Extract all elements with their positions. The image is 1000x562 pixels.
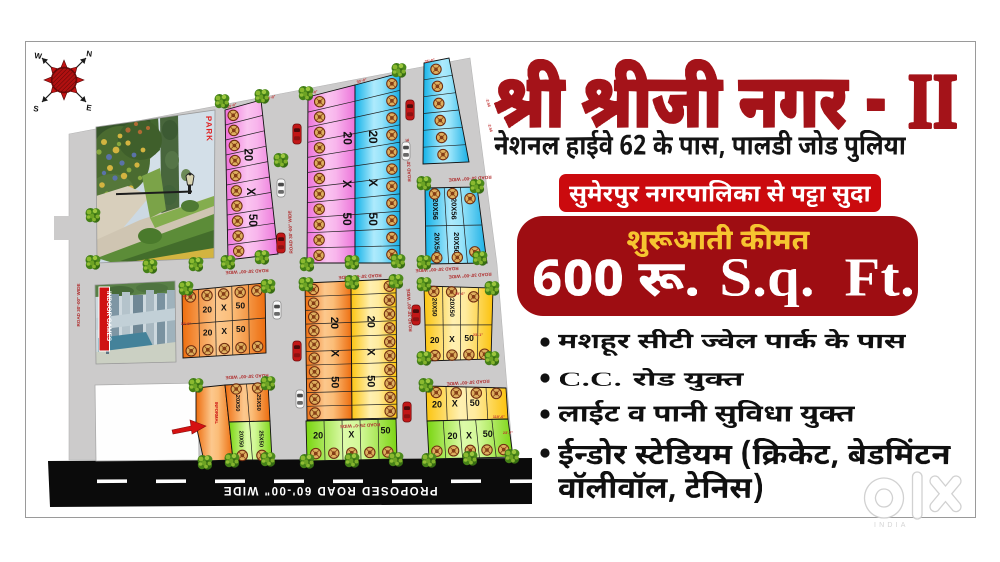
- svg-text:X: X: [366, 179, 380, 187]
- svg-text:20: 20: [313, 430, 323, 440]
- svg-text:X: X: [466, 430, 472, 440]
- svg-text:20X50: 20X50: [237, 431, 243, 448]
- svg-text:20X50: 20X50: [234, 395, 240, 412]
- svg-text:39'-6": 39'-6": [455, 292, 466, 296]
- svg-text:50: 50: [236, 324, 246, 334]
- svg-text:50: 50: [246, 214, 258, 227]
- svg-text:25X50: 25X50: [257, 430, 263, 447]
- svg-text:110'-6": 110'-6": [493, 415, 505, 419]
- svg-text:25X50: 25X50: [255, 394, 261, 411]
- svg-text:20X50: 20X50: [452, 232, 461, 254]
- svg-text:20: 20: [366, 130, 380, 144]
- svg-text:PARK: PARK: [204, 116, 214, 142]
- svg-text:ROAD 30'-00" WIDE: ROAD 30'-00" WIDE: [76, 283, 81, 326]
- svg-text:50: 50: [236, 300, 246, 310]
- svg-text:20: 20: [202, 305, 212, 315]
- svg-text:50: 50: [365, 375, 377, 387]
- svg-text:20: 20: [364, 316, 376, 328]
- svg-text:INFORMAL: INFORMAL: [214, 402, 219, 425]
- svg-text:X: X: [452, 399, 458, 409]
- svg-text:50: 50: [329, 376, 341, 388]
- svg-text:X: X: [364, 348, 376, 356]
- svg-text:20: 20: [241, 149, 253, 162]
- svg-text:X: X: [221, 302, 227, 312]
- svg-text:INDIA: INDIA: [874, 522, 909, 529]
- svg-text:20: 20: [447, 431, 457, 441]
- svg-text:20X56: 20X56: [450, 198, 459, 220]
- svg-text:23'-1": 23'-1": [473, 333, 484, 337]
- svg-text:20X50: 20X50: [448, 298, 455, 317]
- svg-text:50: 50: [483, 429, 493, 439]
- svg-text:X: X: [221, 326, 227, 336]
- svg-text:X: X: [348, 430, 354, 440]
- svg-text:INDOOR GAMES: INDOOR GAMES: [105, 291, 112, 341]
- svg-text:50: 50: [470, 398, 480, 408]
- svg-text:20: 20: [340, 132, 354, 146]
- svg-text:20X50: 20X50: [430, 298, 437, 317]
- svg-text:X: X: [244, 188, 256, 196]
- svg-text:50: 50: [340, 212, 354, 226]
- svg-text:50: 50: [366, 213, 380, 227]
- svg-text:20: 20: [432, 400, 442, 410]
- svg-text:23'-7": 23'-7": [503, 431, 514, 435]
- svg-text:X: X: [340, 180, 354, 188]
- svg-text:20: 20: [328, 317, 340, 329]
- svg-text:X: X: [328, 350, 340, 358]
- svg-text:X: X: [449, 334, 455, 344]
- svg-text:PROPOSED ROAD 60'-00" WIDE: PROPOSED ROAD 60'-00" WIDE: [222, 484, 437, 496]
- svg-text:50: 50: [380, 426, 390, 436]
- svg-text:15'-0": 15'-0": [181, 322, 192, 326]
- svg-text:20X50: 20X50: [432, 232, 441, 254]
- svg-text:20: 20: [430, 335, 440, 345]
- svg-text:20: 20: [203, 328, 213, 338]
- svg-text:20X56: 20X56: [431, 198, 440, 220]
